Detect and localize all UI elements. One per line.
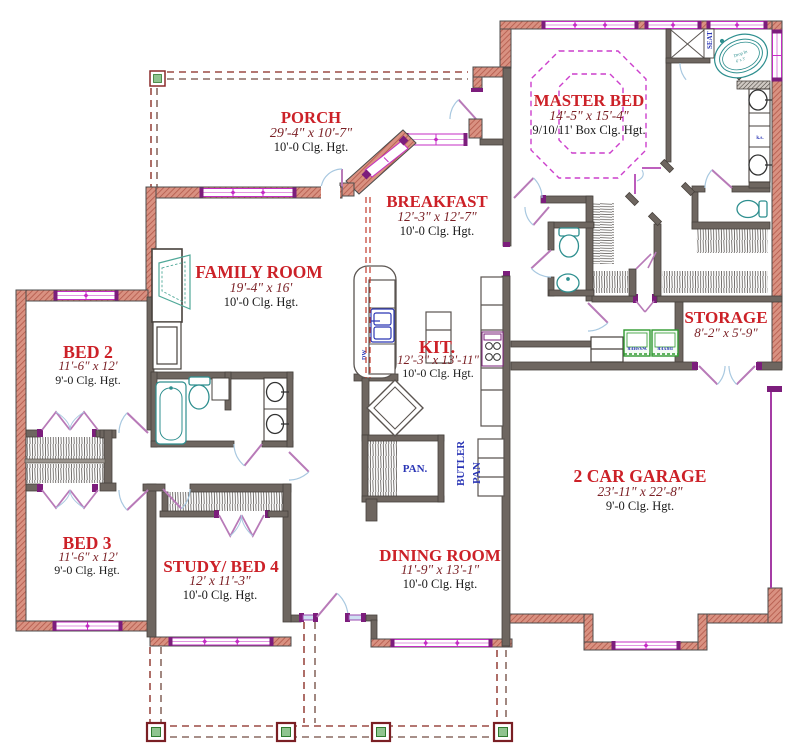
svg-text:8'-2" x 5'-9": 8'-2" x 5'-9": [694, 325, 758, 340]
svg-text:9/10/11' Box Clg. Hgt.: 9/10/11' Box Clg. Hgt.: [532, 123, 645, 137]
svg-text:10'-0 Clg. Hgt.: 10'-0 Clg. Hgt.: [400, 224, 474, 238]
svg-text:k.s.: k.s.: [756, 136, 764, 141]
svg-text:FAMILY ROOM: FAMILY ROOM: [195, 262, 322, 282]
svg-text:9'-0 Clg. Hgt.: 9'-0 Clg. Hgt.: [606, 499, 674, 513]
svg-text:10'-0 Clg. Hgt.: 10'-0 Clg. Hgt.: [403, 577, 477, 591]
svg-text:11'-6" x 12': 11'-6" x 12': [58, 549, 117, 564]
svg-text:DW: DW: [362, 350, 368, 360]
svg-text:12'-3" x 13'-11": 12'-3" x 13'-11": [397, 352, 479, 367]
svg-text:BUTLER: BUTLER: [455, 440, 467, 486]
svg-text:12'-3" x 12'-7": 12'-3" x 12'-7": [397, 209, 477, 224]
svg-text:10'-0 Clg. Hgt.: 10'-0 Clg. Hgt.: [274, 140, 348, 154]
svg-text:9'-0 Clg. Hgt.: 9'-0 Clg. Hgt.: [54, 563, 120, 577]
svg-text:10'-0 Clg. Hgt.: 10'-0 Clg. Hgt.: [402, 366, 474, 380]
svg-text:SEAT: SEAT: [706, 31, 714, 49]
svg-text:DRYER: DRYER: [656, 346, 673, 351]
svg-text:PORCH: PORCH: [281, 108, 341, 127]
svg-text:29'-4" x 10'-7": 29'-4" x 10'-7": [270, 126, 352, 141]
svg-text:12' x 11'-3": 12' x 11'-3": [189, 573, 251, 588]
svg-text:19'-4" x 16': 19'-4" x 16': [230, 280, 294, 295]
svg-text:PAN: PAN: [471, 462, 483, 484]
svg-text:PAN.: PAN.: [403, 463, 428, 475]
svg-text:9'-0 Clg. Hgt.: 9'-0 Clg. Hgt.: [55, 373, 121, 387]
svg-text:10'-0 Clg. Hgt.: 10'-0 Clg. Hgt.: [224, 295, 298, 309]
svg-text:10'-0 Clg. Hgt.: 10'-0 Clg. Hgt.: [183, 588, 257, 602]
svg-text:11'-6" x 12': 11'-6" x 12': [58, 358, 117, 373]
svg-text:11'-9" x 13'-1": 11'-9" x 13'-1": [401, 562, 480, 577]
svg-text:14'-5" x 15'-4": 14'-5" x 15'-4": [549, 108, 629, 123]
svg-text:23'-11" x 22'-8": 23'-11" x 22'-8": [597, 484, 682, 499]
svg-text:WASHER: WASHER: [627, 346, 647, 351]
svg-text:2 CAR GARAGE: 2 CAR GARAGE: [574, 466, 707, 486]
